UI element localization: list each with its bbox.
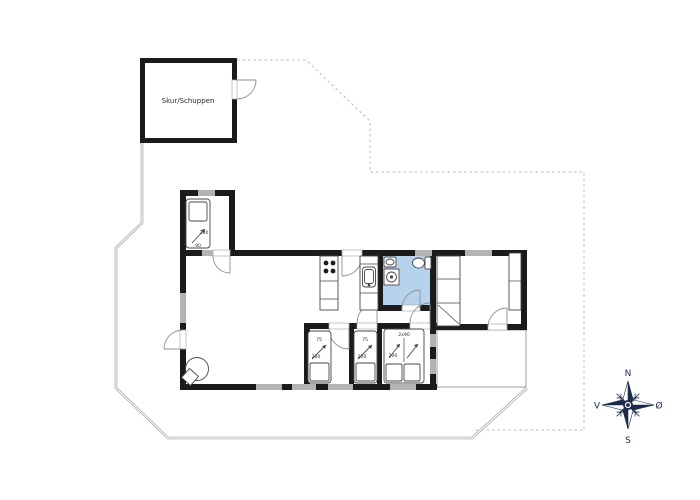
window [430, 359, 436, 374]
window [328, 384, 353, 390]
wall-segment [521, 250, 527, 330]
compass-label-south: S [625, 436, 631, 446]
washing-machine [384, 269, 399, 285]
wall-segment [232, 58, 237, 80]
compass-label-west: V [594, 402, 601, 412]
door-opening [410, 323, 430, 329]
wall-segment [230, 250, 342, 256]
wall-segment [140, 58, 237, 63]
stove-burner [331, 269, 336, 274]
window [390, 384, 416, 390]
wall-segment [377, 329, 382, 384]
entrance-door [342, 256, 362, 276]
window [202, 250, 213, 256]
wall-segment [432, 250, 465, 256]
door-opening [213, 250, 230, 256]
bed-double-length: 200 [389, 353, 398, 359]
wall-segment [282, 384, 292, 390]
wall-segment [180, 323, 186, 330]
wall-segment [316, 384, 328, 390]
bed-nw-width: 90 [195, 243, 201, 249]
shelf-unit [437, 256, 460, 326]
wall-segment [430, 329, 436, 334]
bed-nw-length: 200 [200, 230, 209, 236]
wall-segment [377, 323, 410, 329]
shed-door [237, 80, 256, 99]
wall-segment [232, 99, 237, 143]
bedroom1-door [329, 329, 349, 349]
door-opening [342, 250, 362, 256]
floor-plan-page: Skur/Schuppen 200 90 75 200 75 200 2x90 … [0, 0, 700, 500]
wall-segment [140, 138, 237, 143]
nw-bedroom-door [213, 256, 230, 273]
wall-segment [349, 329, 354, 384]
stove-burner [324, 269, 329, 274]
wall-segment [180, 190, 186, 293]
wall-segment [430, 347, 436, 359]
kitchen-counter-sink [360, 256, 378, 310]
stove-burner [331, 261, 336, 266]
wall-segment [353, 384, 390, 390]
bed1-width: 75 [316, 337, 322, 343]
wall-segment [416, 384, 437, 390]
wall-segment [349, 323, 357, 329]
hand-basin [384, 257, 396, 267]
toilet [413, 257, 432, 269]
bed2-length: 200 [358, 354, 367, 360]
compass-label-east: Ø [655, 401, 662, 412]
bed1-length: 200 [312, 354, 321, 360]
shed-label: Skur/Schuppen [162, 97, 215, 105]
kitchen-counter-stove [320, 256, 338, 310]
window [415, 250, 432, 256]
door-opening [232, 80, 237, 99]
terrace [437, 330, 526, 387]
bed2-width: 75 [362, 337, 368, 343]
window [292, 384, 316, 390]
wall-segment [507, 324, 527, 330]
bed-double-size: 2x90 [398, 332, 410, 338]
floor-plan-drawing: Skur/Schuppen 200 90 75 200 75 200 2x90 … [0, 0, 700, 500]
stove-burner [324, 261, 329, 266]
door-opening [488, 324, 507, 330]
wall-segment [304, 323, 329, 329]
wall-segment [420, 305, 431, 311]
window [465, 250, 492, 256]
door-opening [357, 323, 377, 329]
wall-segment [229, 190, 235, 256]
window [180, 293, 186, 323]
wall-segment [362, 250, 415, 256]
window [198, 190, 215, 196]
wall-segment [430, 323, 437, 329]
door-opening [180, 330, 186, 349]
wall-segment [140, 58, 145, 143]
window [256, 384, 282, 390]
compass-rose: N S V Ø [594, 369, 663, 446]
wardrobe [509, 253, 521, 310]
window [430, 334, 436, 347]
wall-segment [377, 305, 402, 311]
compass-label-north: N [625, 369, 632, 379]
door-opening [329, 323, 349, 329]
bed-nw [186, 199, 210, 248]
